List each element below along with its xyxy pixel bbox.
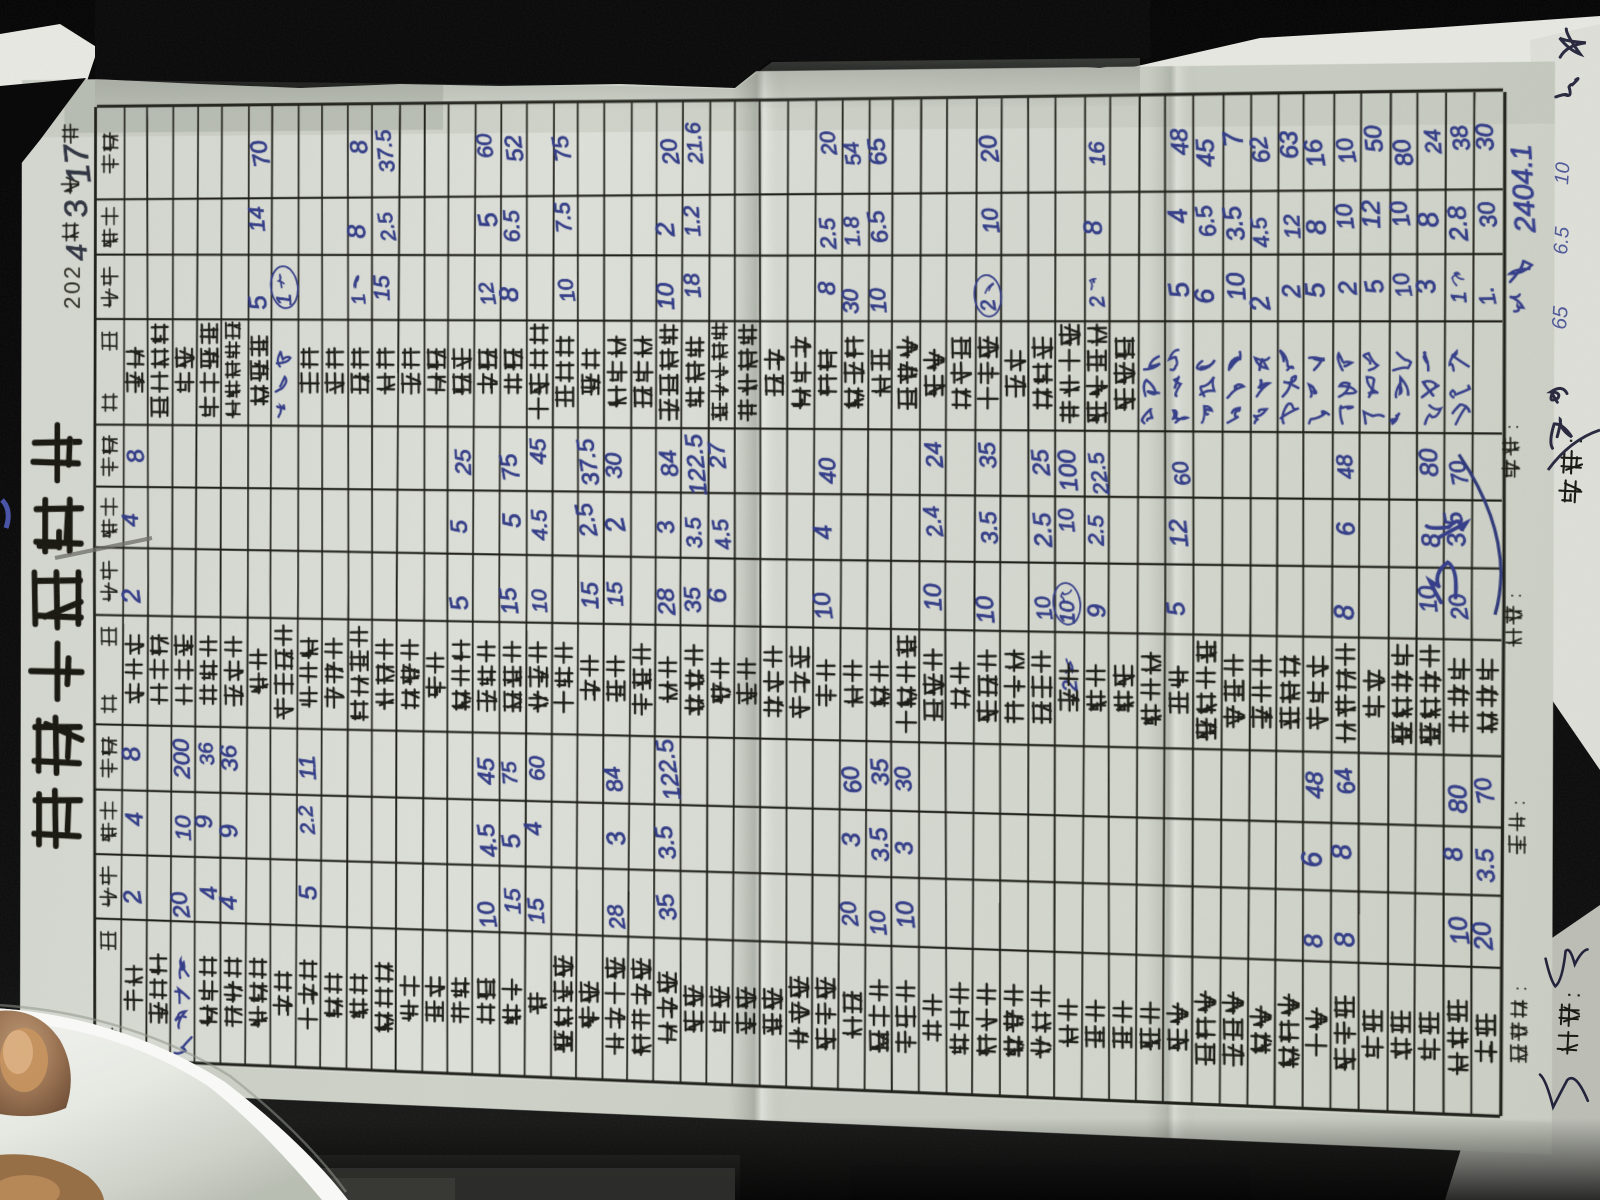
svg-text::: : [1560, 991, 1585, 998]
svg-text:65: 65 [1548, 305, 1573, 330]
svg-text:10: 10 [1551, 162, 1574, 186]
svg-text:6.5: 6.5 [1550, 225, 1574, 255]
